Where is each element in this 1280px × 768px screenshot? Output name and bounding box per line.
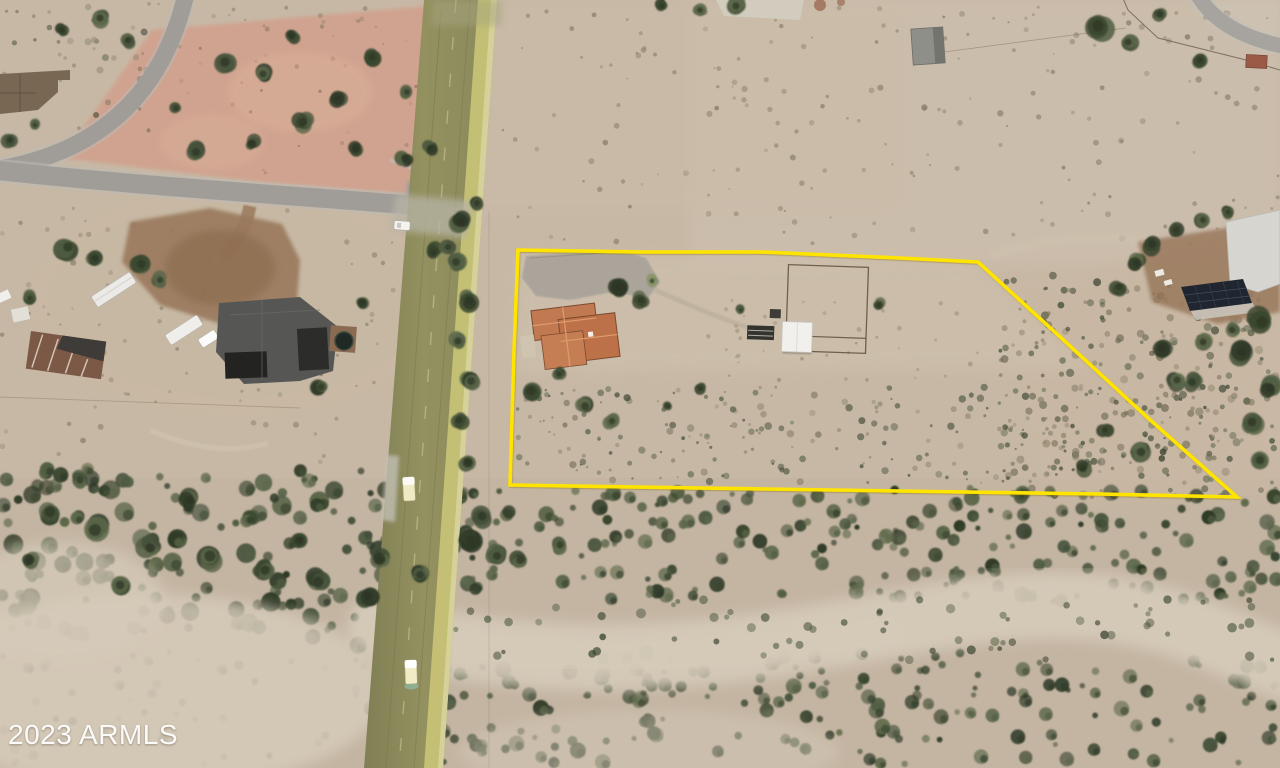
satellite-image — [0, 0, 1280, 768]
red-structure-northeast — [1246, 54, 1268, 68]
dark-shed — [747, 325, 774, 340]
aerial-map-view: 2023 ARMLS — [0, 0, 1280, 768]
truck-northbound — [402, 477, 415, 502]
round-pool — [335, 332, 353, 350]
truck-southbound — [404, 660, 419, 690]
car-white — [394, 220, 411, 230]
shed-north — [911, 27, 945, 65]
concrete-pad — [1226, 210, 1280, 292]
